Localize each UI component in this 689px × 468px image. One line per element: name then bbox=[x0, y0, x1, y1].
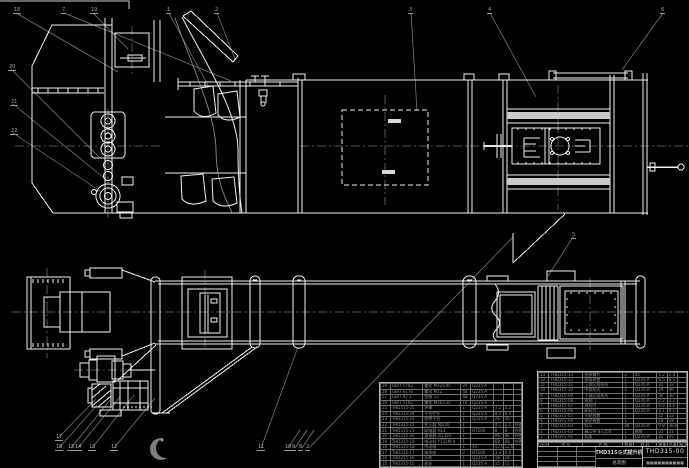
title-block: THD315斗式提升机 总装图 THD315-00 ■■■■■■■■■■ bbox=[537, 447, 688, 468]
balloon-label: 2 bbox=[214, 8, 219, 14]
balloon-label: 18 bbox=[13, 8, 21, 14]
balloon-label: 16 bbox=[55, 445, 63, 451]
bom-cell: 36.8 bbox=[667, 424, 677, 429]
front-view-curves bbox=[175, 17, 242, 213]
bom-cell: 机架 bbox=[583, 434, 623, 439]
signature-cell bbox=[577, 462, 596, 467]
bom-cell: Q235-A bbox=[471, 461, 494, 467]
balloon-label: 13 bbox=[88, 445, 96, 451]
bom-cell: 15 bbox=[381, 461, 391, 467]
bom-cell: 1 bbox=[539, 434, 549, 439]
bom-cell: 12.6 bbox=[503, 444, 513, 450]
signature-cell bbox=[538, 462, 558, 467]
balloon-label: 3 bbox=[408, 8, 413, 14]
bom-grid: 13THD315-13张紧螺杆2451.22.412THD315-12张紧装置1… bbox=[538, 372, 687, 440]
drawing-number: THD315-00 bbox=[643, 447, 687, 457]
balloon-label: 14 bbox=[74, 445, 82, 451]
signature-grid bbox=[538, 447, 596, 467]
balloon-label: 8 bbox=[298, 445, 303, 451]
product-title: THD315斗式提升机 bbox=[596, 447, 642, 458]
bom-cell: 1 bbox=[461, 461, 471, 467]
cad-drawing-canvas: 29GB/T 5782螺栓 M12×4524Q235-A28GB/T 6170螺… bbox=[0, 0, 689, 468]
drawing-type: 总装图 bbox=[596, 458, 642, 467]
balloon-label: 21 bbox=[10, 100, 18, 106]
bom-table-left: 29GB/T 5782螺栓 M12×4524Q235-A28GB/T 6170螺… bbox=[379, 382, 523, 468]
company-name: ■■■■■■■■■■ bbox=[643, 457, 687, 468]
front-view bbox=[32, 11, 684, 263]
balloon-label: 5 bbox=[571, 233, 576, 239]
bom-table-right: 13THD315-13张紧螺杆2451.22.412THD315-12张紧装置1… bbox=[537, 371, 688, 441]
bom-cell: 外购 bbox=[513, 433, 522, 439]
balloon-label: 12 bbox=[110, 445, 118, 451]
balloon-label: 4 bbox=[487, 8, 492, 14]
balloon-label: 11 bbox=[257, 445, 265, 451]
bom-cell: 外购 bbox=[513, 422, 522, 428]
bom-grid: 29GB/T 5782螺栓 M12×4524Q235-A28GB/T 6170螺… bbox=[380, 383, 522, 467]
bom-cell: 外购 bbox=[513, 439, 522, 445]
bom-cell bbox=[678, 434, 687, 439]
bom-cell: 45 bbox=[657, 434, 667, 439]
balloon-label: 22 bbox=[10, 129, 18, 135]
balloon-label: 2 bbox=[305, 445, 310, 451]
bom-cell: THD315-01 bbox=[549, 434, 583, 439]
bom-cell bbox=[513, 461, 522, 467]
balloon-label: 1 bbox=[166, 8, 171, 14]
bom-cell: 15 bbox=[503, 461, 513, 467]
signature-cell bbox=[558, 462, 577, 467]
balloon-label: 20 bbox=[8, 65, 16, 71]
balloon-label: 6 bbox=[660, 8, 665, 14]
bom-cell: 外购 bbox=[513, 428, 522, 434]
bom-cell: THD315-15 bbox=[390, 461, 422, 467]
bom-cell: 12.6 bbox=[493, 444, 503, 450]
bom-cell: 1 bbox=[623, 434, 633, 439]
balloon-label: 19 bbox=[90, 8, 98, 14]
balloon-label: 17 bbox=[55, 435, 63, 441]
bom-cell: 尾轮 bbox=[423, 461, 461, 467]
watermark-logo bbox=[150, 438, 176, 460]
bom-cell: Q235-A bbox=[633, 434, 657, 439]
balloon-label: 7 bbox=[61, 8, 66, 14]
bom-cell: 45 bbox=[667, 434, 677, 439]
bom-cell: 15 bbox=[493, 461, 503, 467]
balloon-label: 9 bbox=[291, 445, 296, 451]
